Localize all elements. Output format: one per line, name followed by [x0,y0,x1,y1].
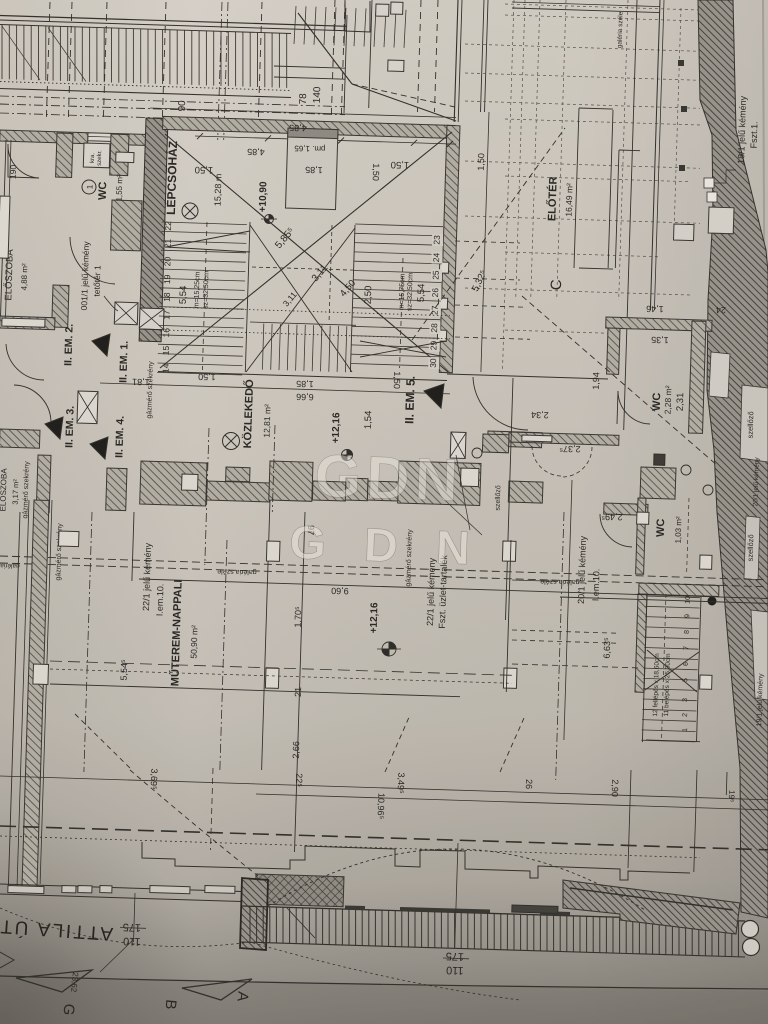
svg-text:WC: WC [655,519,668,538]
svg-text:2,37⁵: 2,37⁵ [559,444,581,454]
svg-text:2,90: 2,90 [610,779,621,797]
svg-text:KÖZLEKEDŐ: KÖZLEKEDŐ [241,379,256,449]
svg-text:9,60: 9,60 [331,586,349,596]
svg-text:6,66: 6,66 [296,392,314,402]
svg-text:175: 175 [123,921,142,934]
svg-text:5,54: 5,54 [416,284,428,303]
svg-text:szekr.: szekr. [97,150,103,166]
svg-text:m=15,75cm: m=15,75cm [398,273,406,310]
svg-text:1,46: 1,46 [646,304,664,314]
svg-text:galéria széle: galéria széle [540,578,580,586]
svg-text:1,55 m²: 1,55 m² [115,174,125,202]
svg-text:7: 7 [683,646,690,650]
svg-text:2,50: 2,50 [363,286,375,305]
svg-text:1,50: 1,50 [476,153,487,171]
svg-text:26: 26 [430,288,440,298]
svg-text:II. EM. 4.: II. EM. 4. [113,416,126,458]
svg-text:28: 28 [429,323,439,333]
svg-text:LÉPCSŐHÁZ: LÉPCSŐHÁZ [163,141,180,215]
svg-text:22: 22 [163,221,173,231]
svg-text:II. EM. 1.: II. EM. 1. [117,341,130,383]
svg-text:sz=32,50cm: sz=32,50cm [406,273,414,311]
svg-text:19⁵: 19⁵ [727,790,737,803]
svg-text:9: 9 [684,614,691,618]
svg-text:3,49⁵: 3,49⁵ [396,772,407,794]
svg-text:30: 30 [428,358,438,368]
svg-text:5,54: 5,54 [178,286,190,305]
svg-text:C: C [548,279,565,291]
svg-text:+10,90: +10,90 [258,181,270,213]
svg-text:4,85: 4,85 [289,123,307,133]
svg-text:20: 20 [162,256,172,266]
svg-text:5: 5 [682,678,689,682]
svg-text:I.em.10.: I.em.10. [154,583,165,616]
svg-text:90: 90 [177,100,188,112]
svg-text:ELŐSZOBA: ELŐSZOBA [0,468,9,512]
svg-text:1,35: 1,35 [651,335,669,345]
svg-text:galéria széle: galéria széle [616,11,624,48]
svg-text:4,85: 4,85 [247,147,265,157]
svg-text:12,81 m²: 12,81 m² [261,404,272,438]
svg-text:1: 1 [85,184,94,189]
svg-text:1,50: 1,50 [392,371,403,389]
svg-text:26: 26 [524,779,534,789]
svg-text:szellőző: szellőző [746,411,756,438]
svg-text:3: 3 [682,698,689,702]
svg-text:sz=32,50cm: sz=32,50cm [202,271,210,309]
svg-text:GDN: GDN [314,442,465,514]
svg-text:II. EM. 2.: II. EM. 2. [62,324,75,366]
svg-text:1,50: 1,50 [195,164,214,175]
svg-text:3,69⁵: 3,69⁵ [149,768,160,790]
svg-text:A: A [233,991,251,1003]
svg-text:16,49 m²: 16,49 m² [563,183,574,217]
svg-text:1,85: 1,85 [305,165,323,175]
svg-text:19: 19 [162,274,172,284]
svg-text:+12,16: +12,16 [369,602,381,634]
svg-text:2,34: 2,34 [531,410,549,420]
svg-text:2,49⁵: 2,49⁵ [601,512,623,522]
svg-text:1,50: 1,50 [198,372,216,382]
svg-text:+12,16: +12,16 [331,412,343,444]
svg-text:pm. 1,65: pm. 1,65 [294,144,326,154]
svg-text:4,88 m²: 4,88 m² [20,263,30,291]
svg-text:I.em.10.: I.em.10. [590,568,601,601]
svg-text:1,94: 1,94 [591,372,602,390]
svg-text:24: 24 [431,252,441,262]
svg-text:szellőző: szellőző [746,534,756,561]
svg-text:140: 140 [312,86,324,103]
svg-text:50,90 m²: 50,90 m² [188,625,199,659]
svg-text:II. EM. 5.: II. EM. 5. [402,376,418,424]
svg-text:galéria széle: galéria széle [217,568,257,576]
svg-text:II. EM. 3.: II. EM. 3. [63,406,76,448]
svg-text:WC: WC [651,393,664,412]
svg-text:17: 17 [161,310,171,320]
svg-text:WC: WC [97,182,110,201]
svg-text:galéria: galéria [0,562,20,569]
svg-text:kra.: kra. [90,153,96,164]
svg-text:6: 6 [683,662,690,666]
svg-text:szellőző: szellőző [495,485,503,511]
svg-text:18: 18 [162,292,172,302]
svg-text:190: 190 [8,164,18,179]
svg-text:1: 1 [682,728,689,732]
svg-text:16: 16 [161,328,171,338]
svg-text:8: 8 [684,630,691,634]
svg-text:3,17 m²: 3,17 m² [11,479,21,505]
svg-text:GDN: GDN [289,515,509,576]
svg-text:5,54⁵: 5,54⁵ [119,659,130,681]
svg-text:1,54: 1,54 [363,411,375,430]
svg-text:24: 24 [716,305,726,315]
svg-text:2,31: 2,31 [675,393,687,412]
svg-text:15: 15 [161,345,171,355]
svg-text:B: B [161,999,179,1011]
svg-text:2: 2 [682,713,689,717]
svg-text:1,03 m²: 1,03 m² [674,516,684,544]
svg-text:G: G [59,1003,77,1016]
svg-text:2,28 m²: 2,28 m² [663,385,674,414]
svg-text:175: 175 [446,950,465,963]
svg-text:23: 23 [432,235,442,245]
svg-text:1,50: 1,50 [371,163,382,181]
svg-text:10: 10 [685,596,692,604]
svg-text:ELŐTÉR: ELŐTÉR [545,176,559,221]
svg-text:6,63⁵: 6,63⁵ [602,637,613,659]
svg-text:m=15,25cm: m=15,25cm [193,271,201,308]
svg-text:tetőtér 1: tetőtér 1 [92,265,103,297]
svg-text:2,66: 2,66 [291,741,302,759]
svg-text:25: 25 [430,270,440,280]
svg-text:110: 110 [446,964,464,977]
svg-text:1,85: 1,85 [296,379,314,389]
svg-text:78: 78 [298,93,309,105]
svg-text:Fszt.1.: Fszt.1. [749,121,760,148]
svg-text:29: 29 [428,340,438,350]
svg-text:10,96⁵: 10,96⁵ [376,793,387,820]
